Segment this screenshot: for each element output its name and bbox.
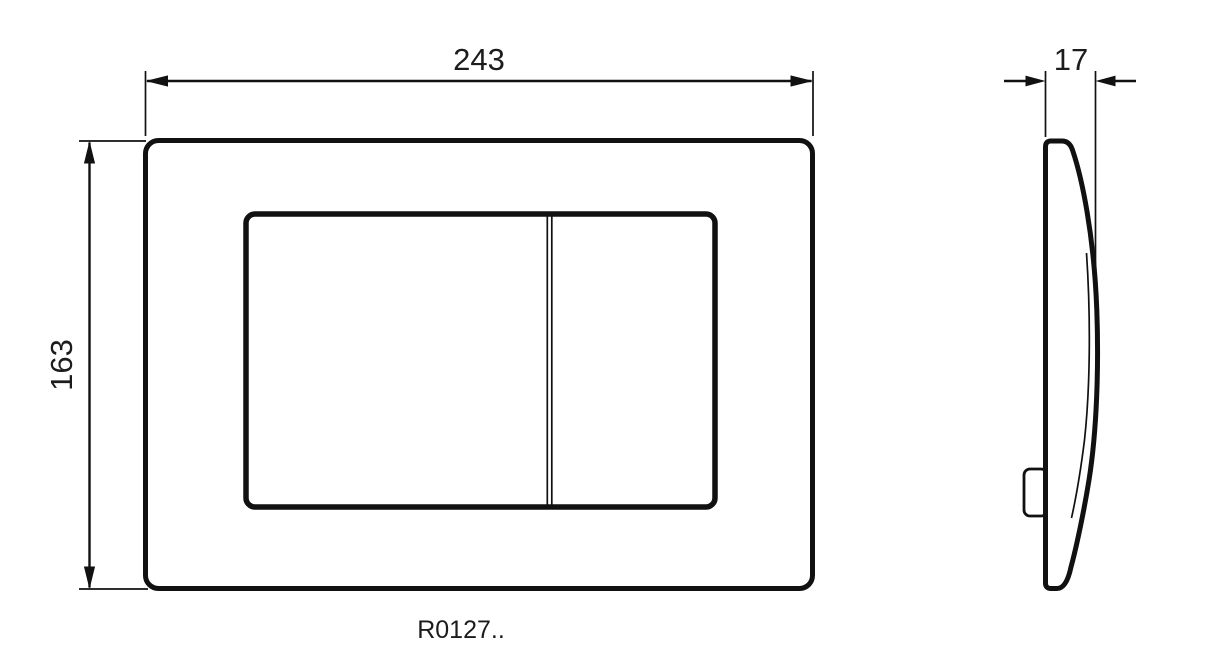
- arrowhead-left-icon: [146, 75, 169, 86]
- technical-drawing-page: 243 163 17: [0, 0, 1211, 665]
- arrowhead-up-icon: [84, 141, 95, 164]
- flush-buttons-outline: [246, 214, 715, 507]
- depth-dimension-label: 17: [1054, 42, 1088, 77]
- arrowhead-left-icon: [1096, 76, 1116, 87]
- arrowhead-down-icon: [84, 567, 95, 590]
- width-dimension: 243: [146, 42, 814, 136]
- flush-plate-technical-drawing: 243 163 17: [0, 0, 1211, 665]
- side-view: [1024, 141, 1098, 589]
- height-dimension: 163: [44, 141, 148, 589]
- product-code-label: R0127..: [417, 616, 505, 644]
- width-dimension-label: 243: [453, 42, 505, 77]
- arrowhead-right-icon: [791, 75, 814, 86]
- height-dimension-label: 163: [44, 339, 79, 391]
- arrowhead-right-icon: [1026, 76, 1046, 87]
- front-view: [146, 141, 813, 589]
